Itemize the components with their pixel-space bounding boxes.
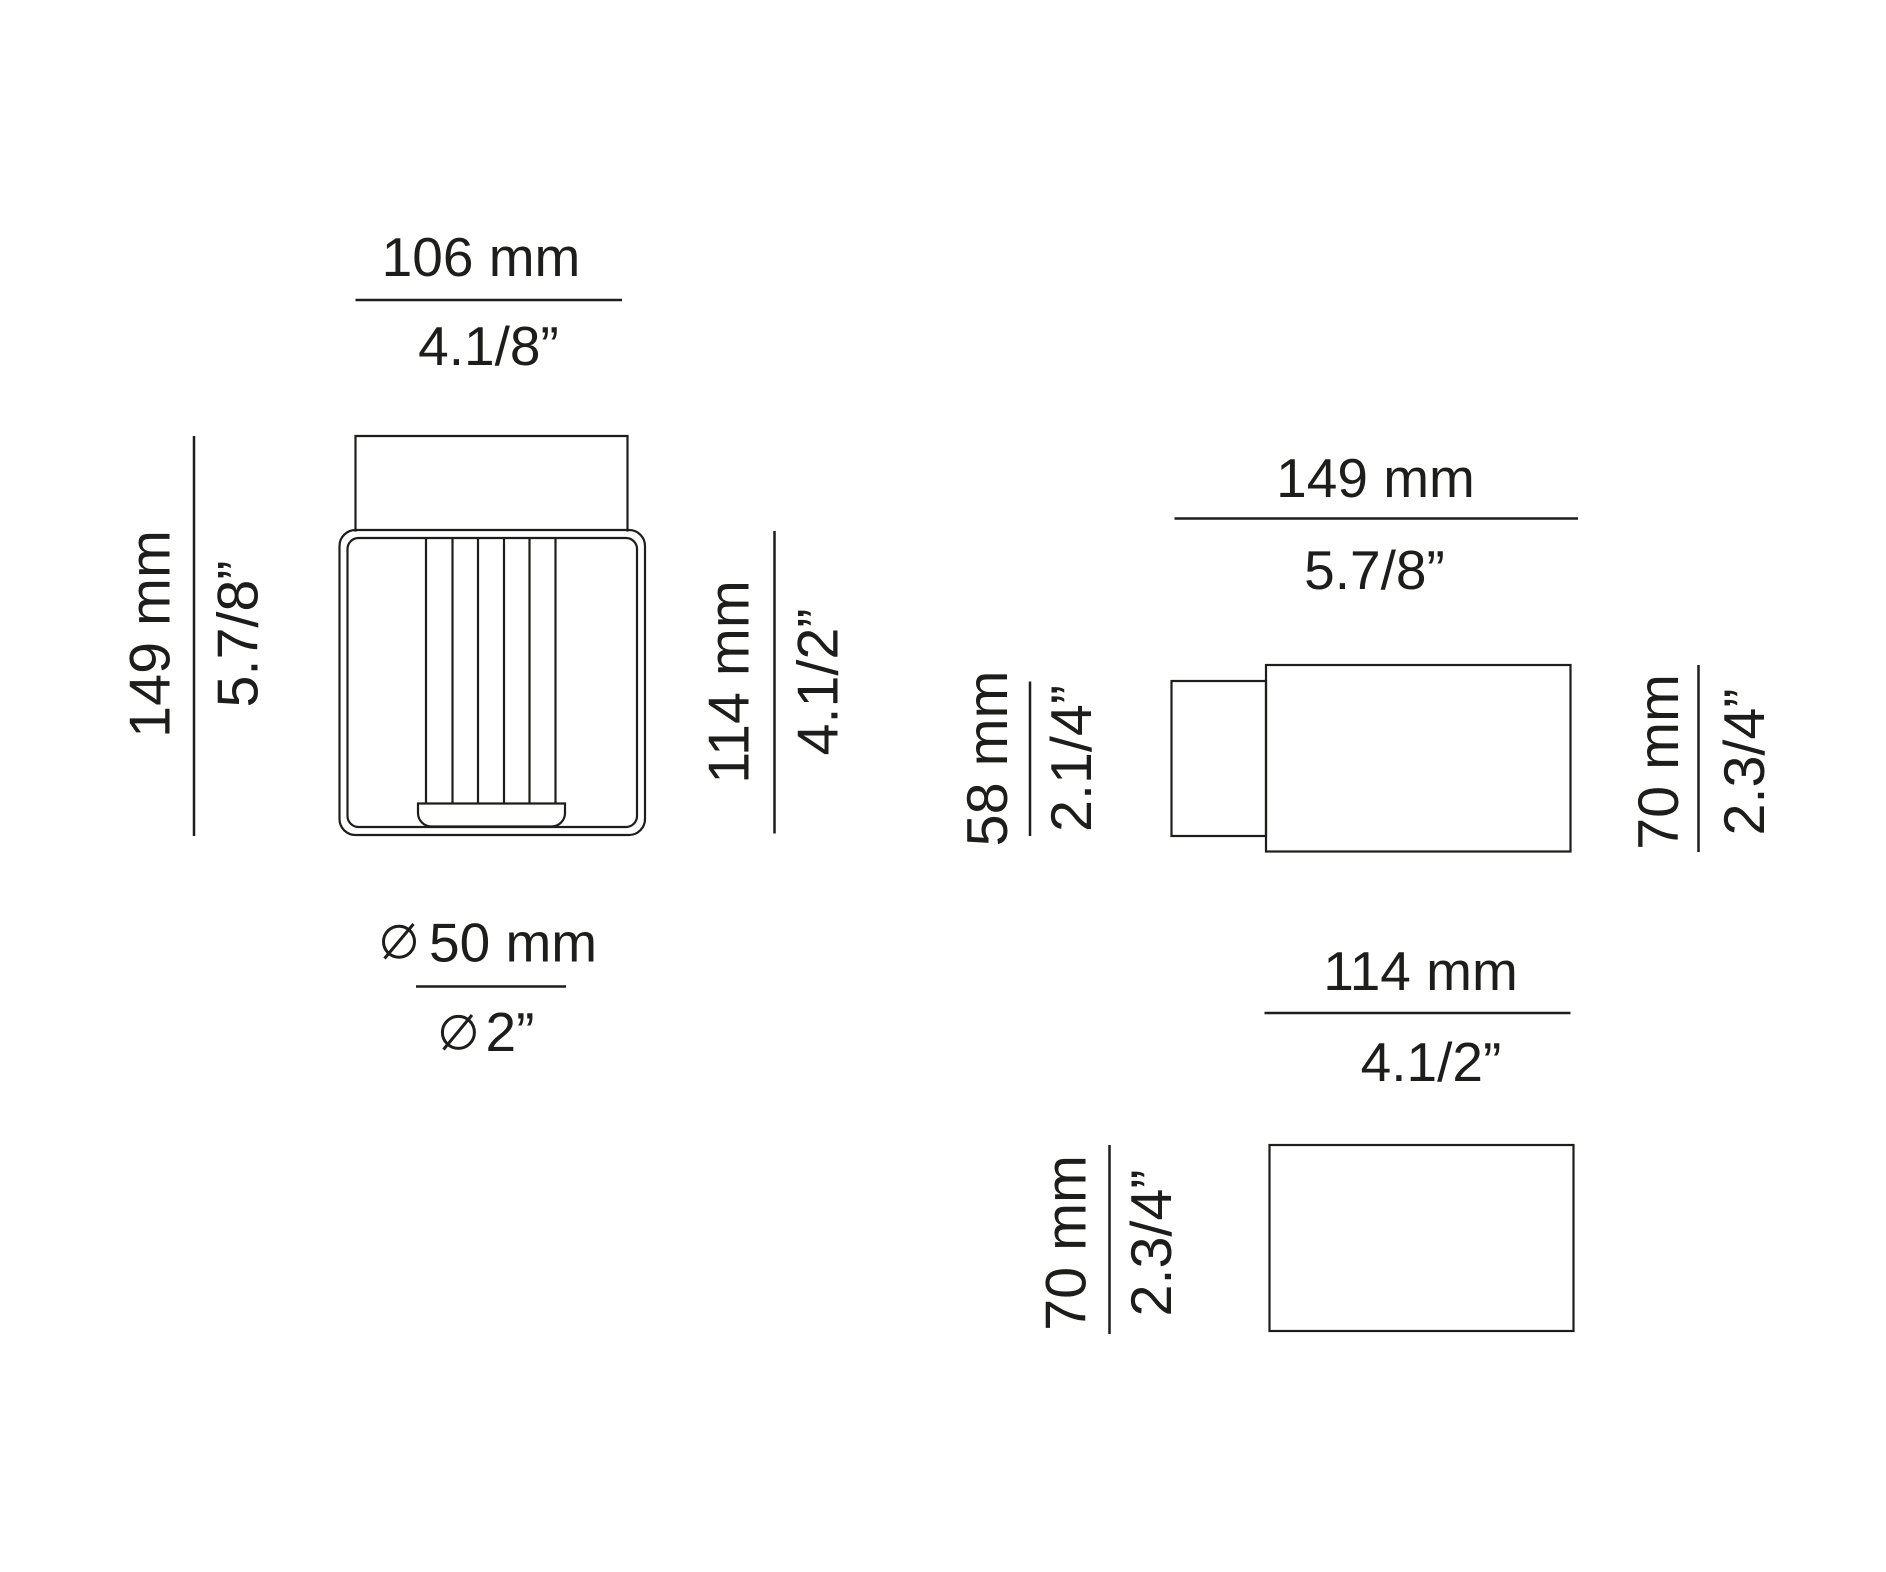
svg-text:114 mm: 114 mm	[697, 580, 761, 783]
svg-text:149 mm: 149 mm	[119, 530, 183, 738]
svg-text:70 mm: 70 mm	[1035, 1155, 1099, 1331]
svg-text:58 mm: 58 mm	[956, 671, 1020, 847]
svg-text:2.3/4”: 2.3/4”	[1120, 1169, 1184, 1316]
svg-text:4.1/8”: 4.1/8”	[418, 315, 559, 377]
svg-text:106 mm: 106 mm	[382, 226, 581, 288]
svg-text:4.1/2”: 4.1/2”	[787, 608, 851, 755]
svg-text:114 mm: 114 mm	[1323, 940, 1518, 1002]
svg-text:2.1/4”: 2.1/4”	[1040, 685, 1104, 832]
svg-text:149 mm: 149 mm	[1276, 447, 1475, 509]
svg-text:50 mm: 50 mm	[429, 912, 597, 974]
svg-text:5.7/8”: 5.7/8”	[1304, 539, 1445, 601]
svg-text:2”: 2”	[486, 1001, 535, 1063]
svg-text:4.1/2”: 4.1/2”	[1361, 1031, 1502, 1093]
svg-text:2.3/4”: 2.3/4”	[1713, 688, 1777, 835]
svg-text:5.7/8”: 5.7/8”	[206, 560, 270, 707]
svg-text:70 mm: 70 mm	[1627, 674, 1691, 850]
